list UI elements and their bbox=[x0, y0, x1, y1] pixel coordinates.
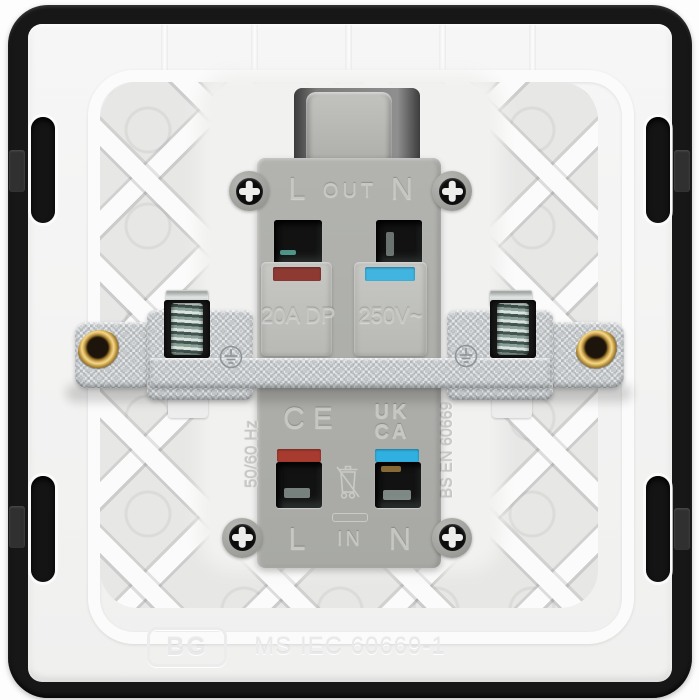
screw-slot bbox=[449, 181, 456, 202]
brass-insert-icon bbox=[78, 330, 122, 374]
current-rating: 20A DP bbox=[261, 303, 332, 329]
actuator-tab bbox=[306, 92, 392, 166]
frequency-mark: 50/60 Hz bbox=[242, 399, 262, 509]
neutral-colour-strip bbox=[365, 267, 415, 281]
frame-clip bbox=[674, 150, 690, 192]
strap-cross-bar bbox=[150, 358, 550, 388]
live-colour-strip bbox=[273, 267, 321, 281]
frame-clip bbox=[9, 506, 25, 548]
ce-mark: CE bbox=[272, 402, 352, 436]
terminal-label-live-out: L bbox=[285, 171, 309, 207]
phillips-screw-icon bbox=[229, 524, 256, 551]
earth-icon bbox=[453, 343, 479, 369]
metal-glint bbox=[284, 488, 310, 498]
brand-logo-box: BG bbox=[147, 627, 227, 667]
plate-rib bbox=[345, 25, 352, 71]
live-colour-strip bbox=[277, 449, 321, 462]
voltage-rating: 250V~ bbox=[354, 303, 427, 329]
standard-mark-bottom: MS IEC 60669-1 bbox=[250, 633, 450, 661]
metal-glint bbox=[386, 232, 394, 256]
wire-opening bbox=[375, 462, 421, 508]
ukca-mark: UK CA bbox=[366, 402, 418, 442]
terminal-label-neutral-in: N bbox=[384, 521, 416, 557]
standard-mark-side: BS EN 60669 bbox=[439, 395, 457, 505]
screw-slot bbox=[239, 527, 246, 548]
metal-glint bbox=[381, 466, 401, 472]
phillips-screw-icon bbox=[439, 524, 466, 551]
product-photo: L OUT N 20A DP 250V~ bbox=[0, 0, 699, 700]
brand-logo: BG bbox=[150, 630, 224, 664]
strap-cutout bbox=[164, 300, 210, 358]
terminal-screw-spring bbox=[171, 303, 203, 355]
fixing-slot bbox=[646, 117, 670, 223]
neutral-colour-strip bbox=[375, 449, 419, 462]
wire-opening bbox=[376, 220, 422, 264]
fixing-slot bbox=[31, 476, 55, 582]
earth-icon bbox=[218, 344, 244, 370]
strap-cutout bbox=[490, 300, 536, 358]
terminal-screw-spring bbox=[497, 303, 529, 355]
phillips-screw-icon bbox=[439, 178, 466, 205]
terminal-label-neutral-out: N bbox=[388, 171, 416, 207]
terminal-label-out: OUT bbox=[322, 180, 378, 203]
terminal-label-in: IN bbox=[332, 528, 368, 551]
terminal-label-live-in: L bbox=[285, 521, 309, 557]
metal-glint bbox=[280, 250, 296, 255]
plate-rib bbox=[161, 25, 168, 71]
frame-clip bbox=[9, 150, 25, 192]
weee-bin-icon bbox=[333, 458, 363, 510]
weee-bar bbox=[332, 513, 368, 522]
phillips-screw-icon bbox=[236, 178, 263, 205]
fixing-slot bbox=[31, 117, 55, 223]
brass-insert-icon bbox=[576, 330, 620, 374]
metal-glint bbox=[383, 490, 411, 500]
plate-rib bbox=[439, 25, 446, 71]
wire-opening bbox=[274, 220, 322, 264]
screw-slot bbox=[246, 181, 253, 202]
fixing-slot bbox=[646, 476, 670, 582]
plate-rib bbox=[251, 25, 258, 71]
wire-opening bbox=[276, 462, 322, 508]
ukca-line1: UK bbox=[366, 402, 418, 422]
screw-slot bbox=[449, 527, 456, 548]
ukca-line2: CA bbox=[366, 422, 418, 442]
plate-rib bbox=[529, 25, 536, 71]
frame-clip bbox=[674, 508, 690, 550]
